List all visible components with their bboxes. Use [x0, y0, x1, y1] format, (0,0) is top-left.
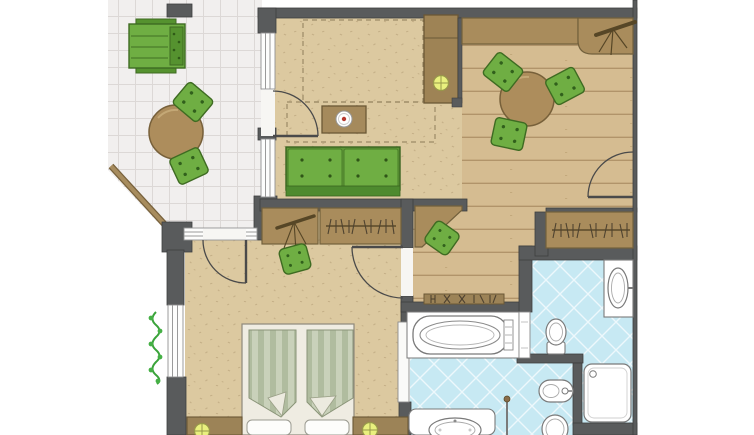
coffee-table [322, 106, 366, 133]
dining-chair-3 [490, 117, 527, 151]
living-window-north [261, 33, 275, 89]
shower [584, 364, 631, 422]
washbasin-2 [409, 409, 495, 435]
bedroom-window-west [168, 305, 183, 377]
floor-plan-canvas [0, 0, 754, 435]
bedside-lamp-left [195, 424, 210, 435]
pillow-right [305, 420, 349, 435]
partition-post [452, 98, 462, 107]
pillow-left [247, 420, 291, 435]
partition-wall [458, 18, 462, 103]
sun-lounger [129, 19, 185, 73]
sofa [286, 147, 400, 196]
dining-wardrobe [546, 212, 633, 248]
nightstand-right [353, 417, 408, 435]
dressing-table [262, 208, 318, 244]
bathroom-door [519, 312, 530, 358]
sideboard-lamp [434, 76, 449, 91]
terrace-door-sill [261, 90, 275, 136]
living-window-south [261, 139, 275, 197]
washbasin-vanity [604, 260, 633, 317]
toilet [546, 319, 566, 354]
luggage-rack [424, 294, 504, 304]
floor-plan [0, 0, 754, 435]
bedside-lamp-right [363, 423, 378, 435]
bathtub-niche [407, 312, 519, 358]
double-bed [242, 324, 354, 435]
bedroom-door-sill [401, 248, 413, 296]
bidet [539, 380, 573, 402]
bedroom-terrace-door-sill [203, 229, 246, 239]
wall-counter [462, 18, 578, 44]
bedroom-wardrobe [320, 208, 401, 244]
